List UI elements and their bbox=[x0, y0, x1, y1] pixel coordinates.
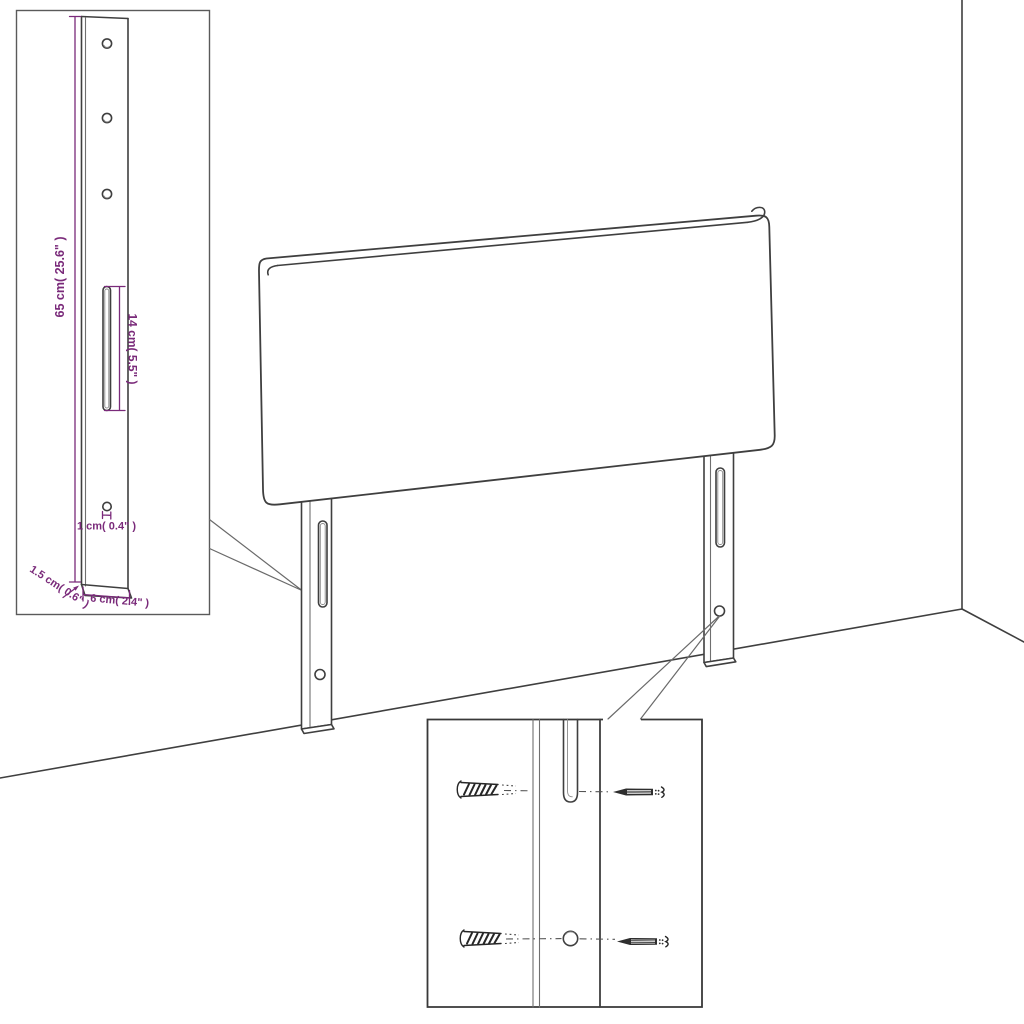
inset2-border bbox=[428, 720, 703, 1008]
screw-dot bbox=[655, 790, 657, 792]
left-leg bbox=[302, 492, 335, 734]
headboard-outline bbox=[259, 216, 775, 505]
leg-dimension-inset: 65 cm( 25.6" ) 14 cm( 5.5" ) 1 cm( 0.4" … bbox=[17, 11, 210, 615]
screw-dot bbox=[658, 793, 660, 795]
left-leg-hole bbox=[315, 670, 325, 680]
right-leg-slot bbox=[716, 468, 725, 547]
screw-dot bbox=[662, 939, 664, 941]
floor-line-right bbox=[962, 609, 1024, 642]
screw-dot bbox=[659, 943, 661, 945]
hole-diameter-dimension-label: 1 cm( 0.4" ) bbox=[77, 521, 136, 533]
mounting-detail-inset bbox=[428, 720, 703, 1008]
slot-length-dimension-label: 14 cm( 5.5" ) bbox=[126, 313, 140, 384]
inset-callout-wedge bbox=[210, 520, 303, 591]
screw-dot bbox=[662, 943, 664, 945]
headboard-assembly-diagram: 65 cm( 25.6" ) 14 cm( 5.5" ) 1 cm( 0.4" … bbox=[0, 0, 1024, 1024]
headboard-panel bbox=[259, 207, 775, 504]
inset2-hole bbox=[563, 931, 577, 945]
right-leg bbox=[704, 447, 736, 667]
right-leg-hole bbox=[715, 606, 725, 616]
diagram-canvas: 65 cm( 25.6" ) 14 cm( 5.5" ) 1 cm( 0.4" … bbox=[0, 0, 1024, 1024]
height-dimension-label: 65 cm( 25.6" ) bbox=[53, 237, 67, 318]
screw-dot bbox=[659, 939, 661, 941]
left-leg-slot bbox=[319, 521, 328, 607]
screw-dot bbox=[655, 793, 657, 795]
screw-dot bbox=[658, 790, 660, 792]
